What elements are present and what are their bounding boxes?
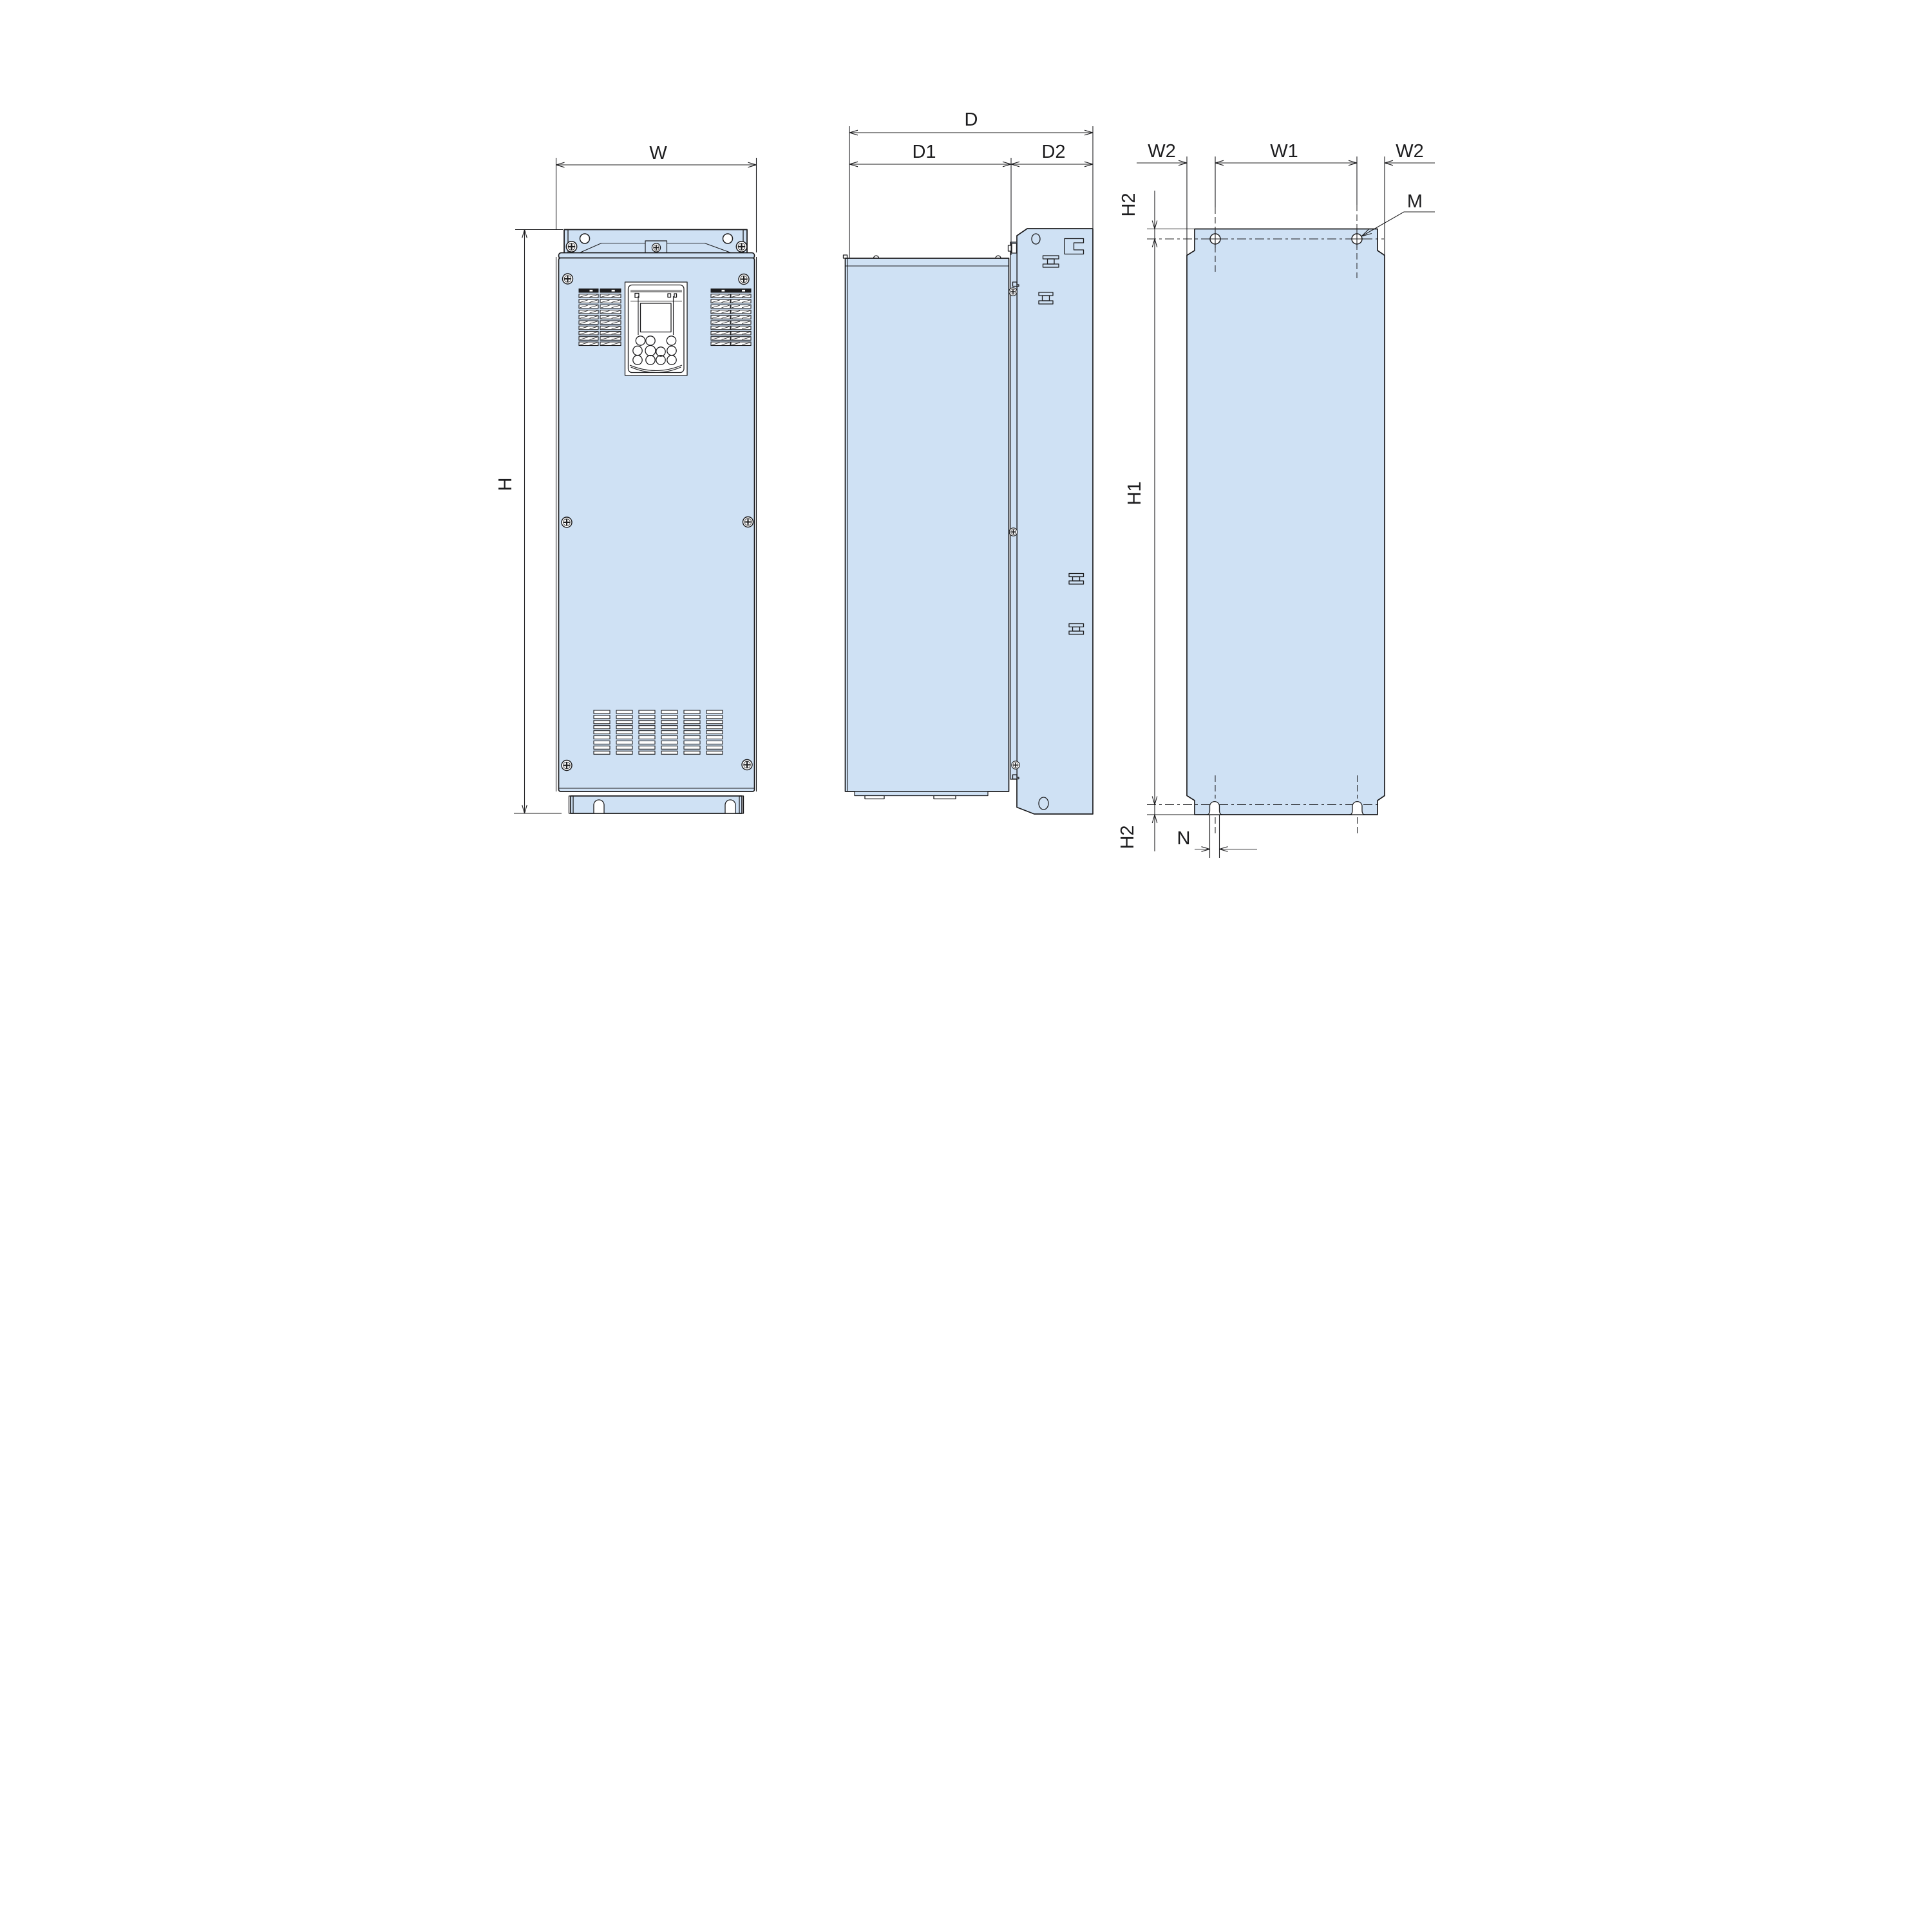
vent-slot bbox=[616, 736, 632, 739]
vent-slat bbox=[600, 337, 621, 341]
screw-icon bbox=[736, 241, 746, 252]
vent-slot bbox=[616, 746, 632, 749]
vent-slot bbox=[639, 741, 655, 744]
vent-slot bbox=[594, 731, 610, 734]
vent-slat bbox=[600, 316, 621, 319]
vent-slot bbox=[684, 751, 700, 754]
keypad bbox=[625, 282, 688, 375]
rear-mounting-plate bbox=[1187, 229, 1385, 815]
vent-slot bbox=[684, 736, 700, 739]
vent-slat bbox=[711, 305, 730, 308]
vent-slot bbox=[661, 721, 677, 724]
vent-slot bbox=[594, 726, 610, 729]
side-base bbox=[855, 791, 988, 796]
vent-slot bbox=[639, 726, 655, 729]
dim-label-d2: D2 bbox=[1041, 142, 1065, 162]
vent-slat bbox=[600, 299, 621, 303]
vent-slot bbox=[706, 746, 723, 749]
vent-slat bbox=[731, 310, 751, 314]
vent-slot bbox=[616, 715, 632, 719]
drawing-page: W H bbox=[483, 0, 1449, 966]
vent-slot bbox=[661, 715, 677, 719]
vent-slot bbox=[706, 736, 723, 739]
vent-slat bbox=[731, 326, 751, 330]
vent-slat bbox=[579, 310, 598, 314]
vent-slat bbox=[731, 342, 751, 346]
vent-slat bbox=[579, 337, 598, 341]
vent-slot bbox=[639, 731, 655, 734]
screw-icon bbox=[743, 517, 753, 527]
side-view: D D1 D2 bbox=[844, 109, 1094, 814]
vent-slat bbox=[600, 321, 621, 325]
dim-label-h1: H1 bbox=[1124, 481, 1145, 505]
dimension-h: H bbox=[495, 230, 563, 814]
vent-slat bbox=[600, 342, 621, 346]
vent-slot bbox=[616, 741, 632, 744]
vent-slot bbox=[684, 715, 700, 719]
vent-slot bbox=[639, 736, 655, 739]
vent-slot bbox=[706, 710, 723, 714]
vent-slat bbox=[600, 305, 621, 308]
vent-slot bbox=[616, 721, 632, 724]
vent-slat bbox=[731, 294, 751, 298]
vent-slat bbox=[579, 321, 598, 325]
vent-slat bbox=[600, 310, 621, 314]
screw-icon bbox=[562, 517, 572, 527]
vent-slot bbox=[684, 710, 700, 714]
dim-label-w2-right: W2 bbox=[1396, 141, 1424, 162]
dim-label-m: M bbox=[1407, 191, 1423, 212]
side-flange bbox=[1010, 242, 1017, 779]
vent-slot bbox=[706, 726, 723, 729]
vent-slot bbox=[661, 726, 677, 729]
dim-label-n: N bbox=[1177, 828, 1191, 849]
vent-slat bbox=[711, 294, 730, 298]
dim-label-d: D bbox=[965, 109, 978, 130]
dim-label-w2-left: W2 bbox=[1148, 141, 1176, 162]
vent-slot bbox=[616, 731, 632, 734]
vent-slot bbox=[684, 721, 700, 724]
vent-slat bbox=[579, 342, 598, 346]
vent-slat bbox=[711, 316, 730, 319]
side-mounting-plate bbox=[1017, 229, 1093, 814]
vent-slat bbox=[579, 305, 598, 308]
vent-slat bbox=[711, 332, 730, 336]
front-top-mounting-plate bbox=[564, 230, 747, 256]
mounting-hole bbox=[723, 234, 733, 243]
screw-icon bbox=[739, 274, 749, 285]
vent-slat bbox=[731, 316, 751, 319]
vent-slat bbox=[711, 337, 730, 341]
foot-slot bbox=[594, 800, 604, 813]
vent-slat bbox=[579, 289, 598, 293]
vent-slat bbox=[711, 326, 730, 330]
vent-slot bbox=[684, 746, 700, 749]
vent-slot bbox=[706, 751, 723, 754]
screw-icon bbox=[1012, 761, 1019, 769]
rear-view: W2 W1 W2 H2 H1 H2 N M bbox=[1117, 141, 1435, 858]
vent-slat bbox=[579, 326, 598, 330]
screw-icon bbox=[562, 761, 572, 771]
vent-slot bbox=[594, 721, 610, 724]
side-body bbox=[846, 258, 1009, 791]
dim-label-h: H bbox=[495, 478, 516, 491]
vent-slat bbox=[731, 289, 751, 293]
screw-icon bbox=[566, 241, 576, 252]
screw-icon bbox=[1009, 288, 1017, 296]
vent-slot bbox=[594, 751, 610, 754]
vent-slot bbox=[706, 731, 723, 734]
vent-slot bbox=[639, 710, 655, 714]
front-view: W H bbox=[495, 143, 757, 813]
flange-bolt bbox=[1009, 243, 1017, 253]
foot-slot bbox=[725, 800, 735, 813]
screw-icon bbox=[1009, 528, 1017, 536]
vent-slot bbox=[661, 710, 677, 714]
vent-slot bbox=[594, 710, 610, 714]
vent-slot bbox=[639, 715, 655, 719]
vent-slot bbox=[684, 726, 700, 729]
vent-slot bbox=[661, 746, 677, 749]
vent-slat bbox=[731, 337, 751, 341]
vent-slat bbox=[600, 332, 621, 336]
dimension-h1-h2: H2 H1 H2 bbox=[1117, 191, 1195, 851]
vent-slot bbox=[661, 751, 677, 754]
dim-label-w: W bbox=[649, 143, 667, 164]
vent-slot bbox=[616, 751, 632, 754]
vent-slot bbox=[684, 741, 700, 744]
vent-slat bbox=[579, 332, 598, 336]
vent-slot bbox=[639, 746, 655, 749]
vent-slot bbox=[594, 746, 610, 749]
vent-slat bbox=[579, 316, 598, 319]
vent-slat bbox=[600, 289, 621, 293]
vent-slat bbox=[731, 299, 751, 303]
dimension-n: N bbox=[1177, 815, 1257, 858]
vent-slot bbox=[639, 721, 655, 724]
dim-label-d1: D1 bbox=[912, 142, 936, 162]
vent-slat bbox=[711, 299, 730, 303]
vent-slat bbox=[731, 332, 751, 336]
dim-label-h2-top: H2 bbox=[1119, 193, 1139, 216]
vent-slot bbox=[639, 751, 655, 754]
vent-slat bbox=[711, 310, 730, 314]
vent-slot bbox=[661, 736, 677, 739]
front-base bbox=[569, 796, 744, 813]
vent-slat bbox=[711, 321, 730, 325]
vent-slot bbox=[594, 715, 610, 719]
vent-slat bbox=[731, 321, 751, 325]
vent-slat bbox=[600, 326, 621, 330]
vent-slot bbox=[661, 741, 677, 744]
dim-label-w1: W1 bbox=[1270, 141, 1298, 162]
screw-icon bbox=[652, 243, 660, 252]
screw-icon bbox=[742, 760, 752, 770]
vfd-dimension-diagram: W H bbox=[483, 0, 1449, 966]
dim-label-h2-bottom: H2 bbox=[1117, 825, 1138, 849]
vent-slot bbox=[684, 731, 700, 734]
vent-slot bbox=[706, 715, 723, 719]
vent-slot bbox=[616, 710, 632, 714]
vent-slot bbox=[661, 731, 677, 734]
vent-slot bbox=[594, 741, 610, 744]
vent-slot bbox=[594, 736, 610, 739]
screw-icon bbox=[563, 274, 573, 284]
vent-slot bbox=[706, 721, 723, 724]
mounting-hole bbox=[580, 234, 590, 243]
vent-slat bbox=[731, 305, 751, 308]
vent-slat bbox=[711, 289, 730, 293]
vent-slat bbox=[711, 342, 730, 346]
vent-slot bbox=[616, 726, 632, 729]
vent-slot bbox=[706, 741, 723, 744]
vent-slat bbox=[579, 299, 598, 303]
vent-slat bbox=[579, 294, 598, 298]
vent-slat bbox=[600, 294, 621, 298]
